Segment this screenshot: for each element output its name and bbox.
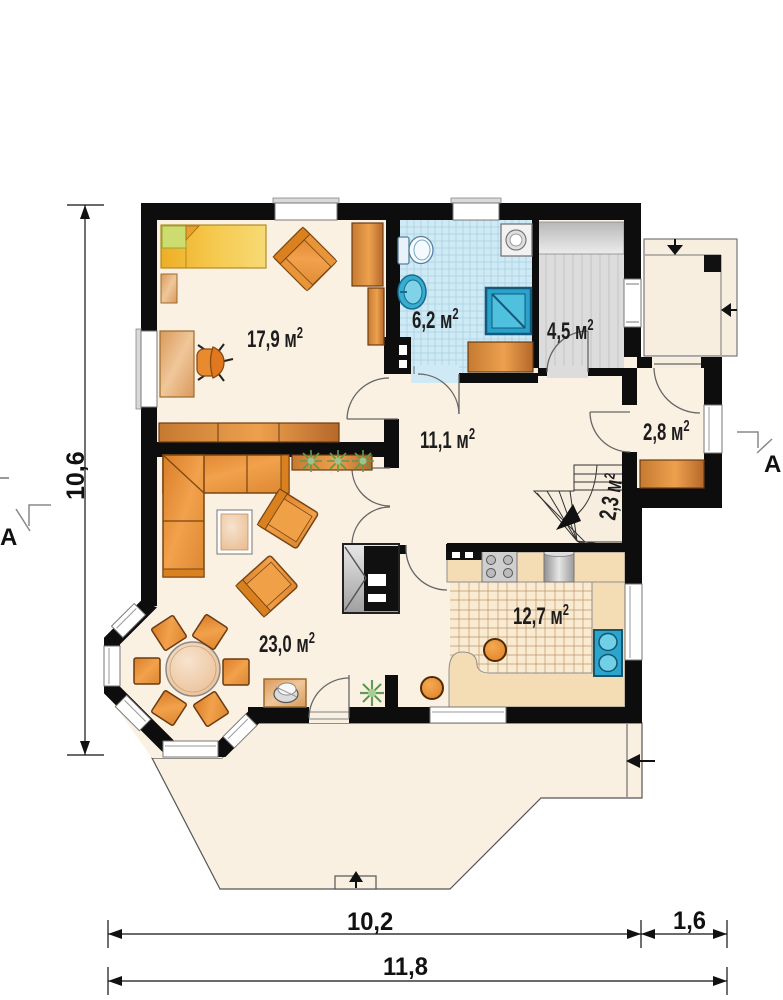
svg-text:17,9 м2: 17,9 м2 xyxy=(247,323,303,353)
svg-text:10,6: 10,6 xyxy=(62,451,90,500)
svg-text:4,5 м2: 4,5 м2 xyxy=(547,315,594,345)
svg-text:12,7 м2: 12,7 м2 xyxy=(513,600,569,630)
svg-text:6,2 м2: 6,2 м2 xyxy=(412,304,459,334)
svg-text:A: A xyxy=(0,524,17,551)
svg-text:A: A xyxy=(764,451,781,478)
svg-text:23,0 м2: 23,0 м2 xyxy=(259,628,315,658)
svg-text:11,1 м2: 11,1 м2 xyxy=(420,424,475,454)
svg-text:10,2: 10,2 xyxy=(347,908,393,936)
svg-text:2,8 м2: 2,8 м2 xyxy=(643,416,690,446)
svg-text:11,8: 11,8 xyxy=(383,953,428,981)
svg-text:1,6: 1,6 xyxy=(673,907,706,935)
